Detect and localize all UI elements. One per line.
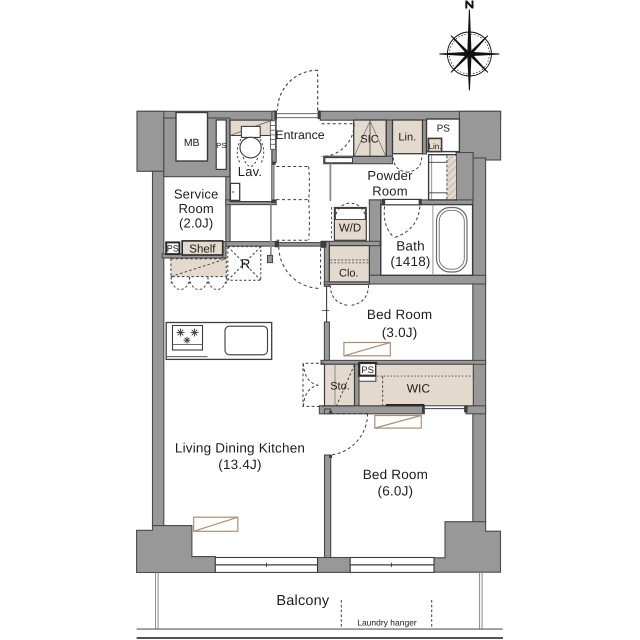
svg-text:Lin.: Lin.	[429, 142, 442, 151]
svg-text:WIC: WIC	[407, 382, 431, 396]
svg-text:(13.4J): (13.4J)	[218, 457, 261, 472]
svg-text:(6.0J): (6.0J)	[378, 484, 414, 499]
svg-text:PS: PS	[167, 243, 179, 253]
svg-text:Room: Room	[178, 201, 213, 216]
svg-text:MB: MB	[184, 137, 200, 149]
svg-text:(1418): (1418)	[390, 254, 430, 269]
svg-text:Bed Room: Bed Room	[367, 307, 432, 322]
svg-text:Room: Room	[372, 184, 407, 199]
svg-text:Bed Room: Bed Room	[363, 467, 428, 482]
svg-text:Shelf: Shelf	[189, 243, 216, 255]
svg-text:SIC: SIC	[360, 134, 378, 146]
svg-text:Service: Service	[174, 187, 219, 202]
svg-text:(2.0J): (2.0J)	[179, 216, 213, 231]
svg-text:PS: PS	[216, 141, 226, 150]
svg-text:Clo.: Clo.	[339, 268, 359, 280]
svg-text:Bath: Bath	[396, 239, 425, 254]
svg-text:PS: PS	[361, 365, 374, 376]
svg-text:Sto.: Sto.	[330, 381, 350, 393]
svg-text:Living Dining Kitchen: Living Dining Kitchen	[175, 440, 305, 455]
svg-text:(3.0J): (3.0J)	[382, 325, 418, 340]
svg-text:Lav.: Lav.	[238, 164, 262, 179]
svg-text:PS: PS	[437, 124, 451, 135]
svg-text:R: R	[241, 257, 251, 272]
svg-text:W/D: W/D	[339, 223, 361, 235]
svg-text:Powder: Powder	[367, 168, 413, 183]
svg-text:Balcony: Balcony	[276, 593, 330, 609]
svg-text:Laundry hanger: Laundry hanger	[357, 618, 417, 628]
svg-text:Lin.: Lin.	[398, 132, 416, 144]
svg-text:Entrance: Entrance	[275, 128, 324, 142]
